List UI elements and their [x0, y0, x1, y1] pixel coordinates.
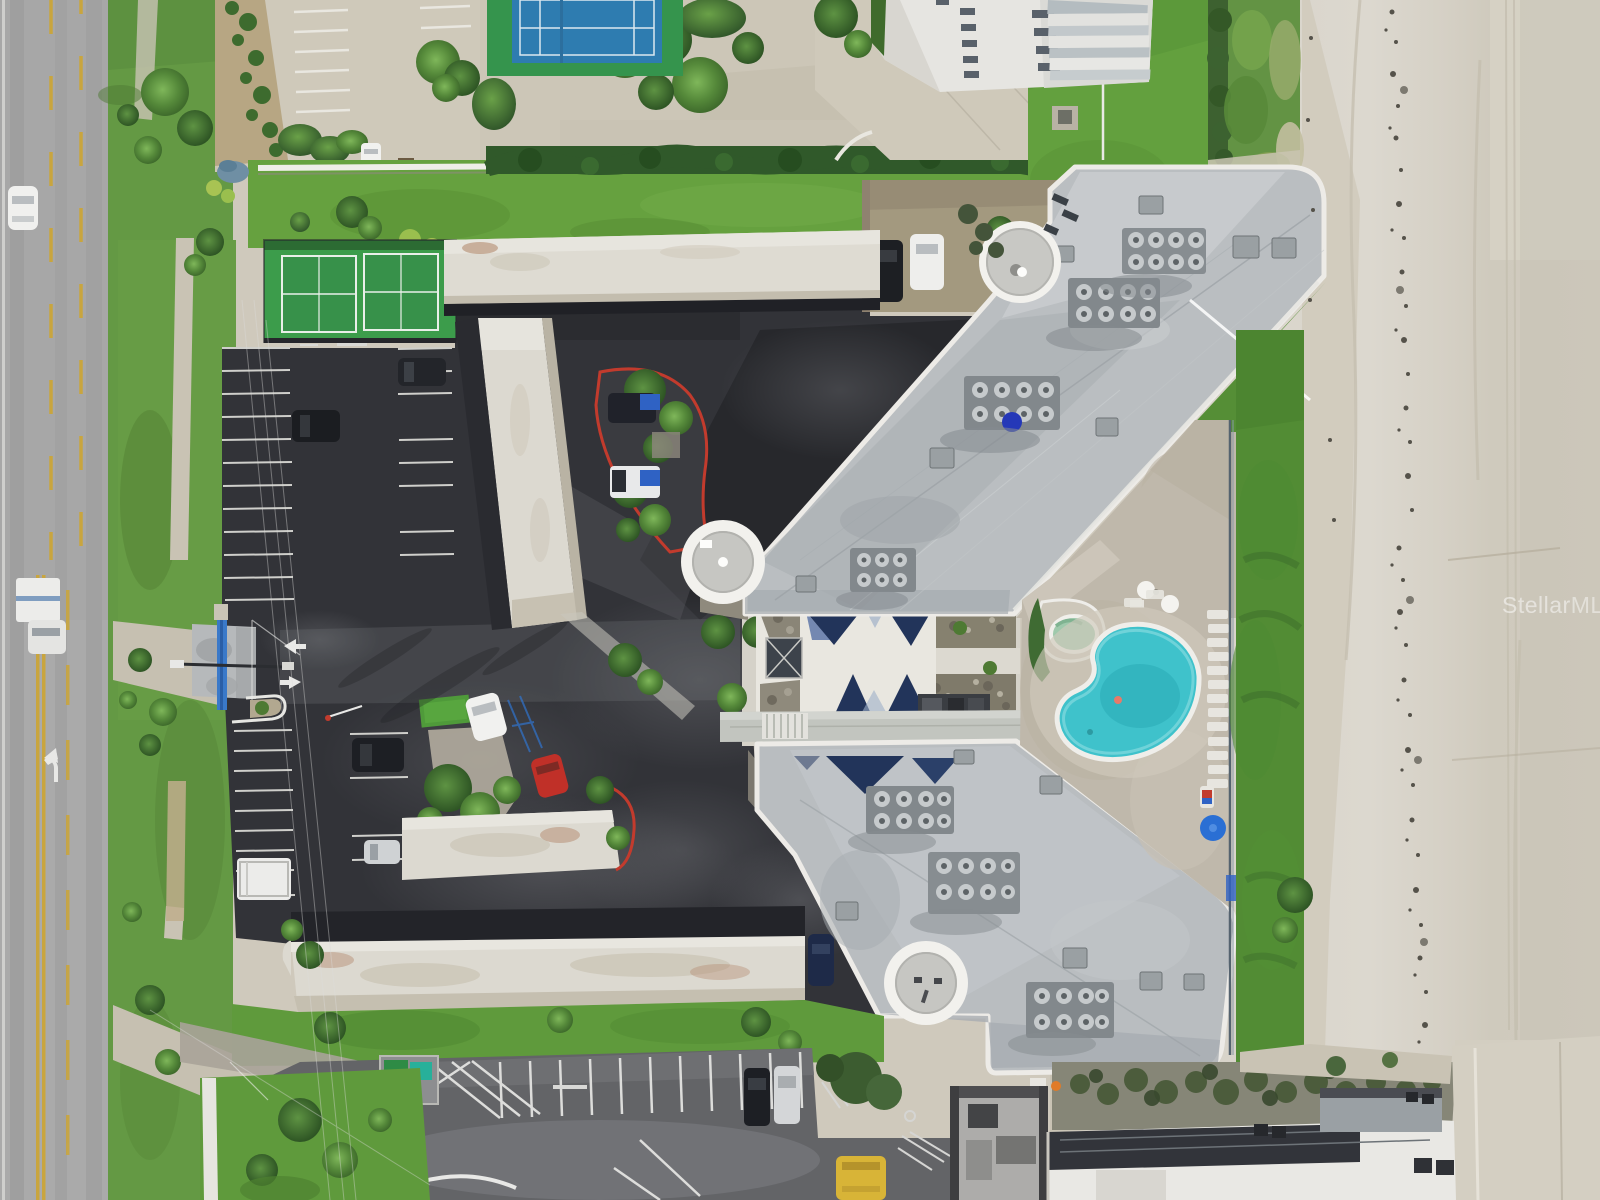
svg-text:StellarMLS: StellarMLS	[1502, 592, 1600, 618]
